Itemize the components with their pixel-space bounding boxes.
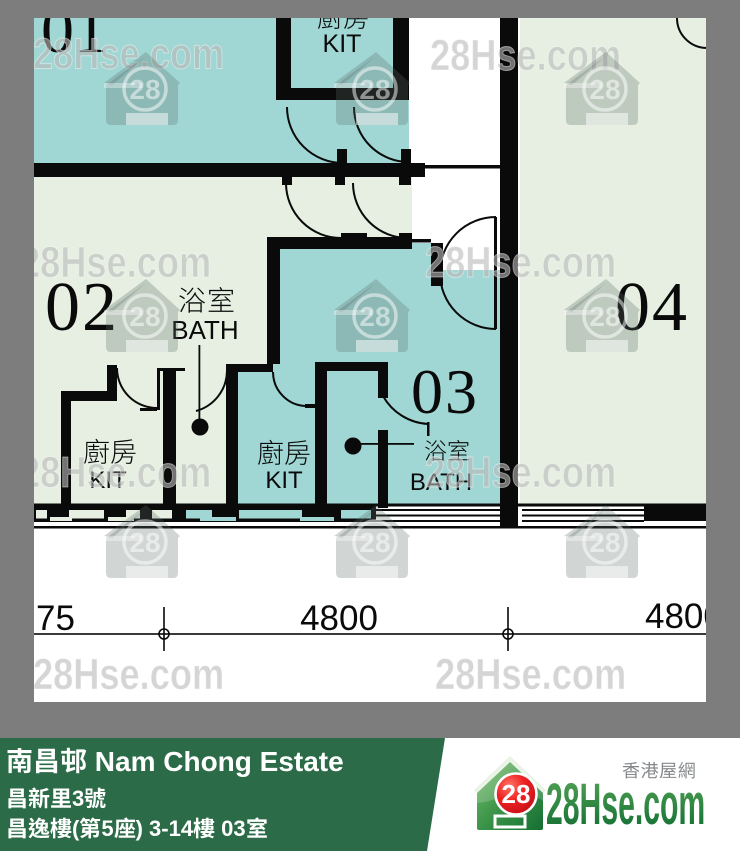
svg-text:28: 28 bbox=[129, 527, 160, 558]
svg-text:28Hse.com: 28Hse.com bbox=[425, 448, 616, 497]
svg-text:28Hse.com: 28Hse.com bbox=[546, 771, 705, 836]
svg-text:28: 28 bbox=[359, 74, 390, 105]
svg-text:28: 28 bbox=[589, 527, 620, 558]
svg-text:28Hse.com: 28Hse.com bbox=[33, 650, 224, 699]
svg-text:28: 28 bbox=[359, 527, 390, 558]
svg-text:28Hse.com: 28Hse.com bbox=[20, 238, 211, 287]
svg-text:75: 75 bbox=[36, 599, 75, 638]
svg-text:28: 28 bbox=[129, 74, 160, 105]
svg-text:28: 28 bbox=[589, 301, 620, 332]
svg-text:KIT: KIT bbox=[323, 30, 362, 58]
svg-text:28Hse.com: 28Hse.com bbox=[20, 448, 211, 497]
svg-text:BATH: BATH bbox=[171, 315, 238, 345]
svg-text:03: 03 bbox=[411, 356, 479, 427]
svg-text:28: 28 bbox=[502, 779, 531, 809]
svg-text:28Hse.com: 28Hse.com bbox=[425, 238, 616, 287]
svg-text:28: 28 bbox=[589, 74, 620, 105]
svg-text:28: 28 bbox=[359, 301, 390, 332]
svg-text:28: 28 bbox=[129, 301, 160, 332]
svg-text:KIT: KIT bbox=[265, 467, 303, 494]
svg-text:4800: 4800 bbox=[300, 599, 378, 638]
svg-text:28Hse.com: 28Hse.com bbox=[435, 650, 626, 699]
